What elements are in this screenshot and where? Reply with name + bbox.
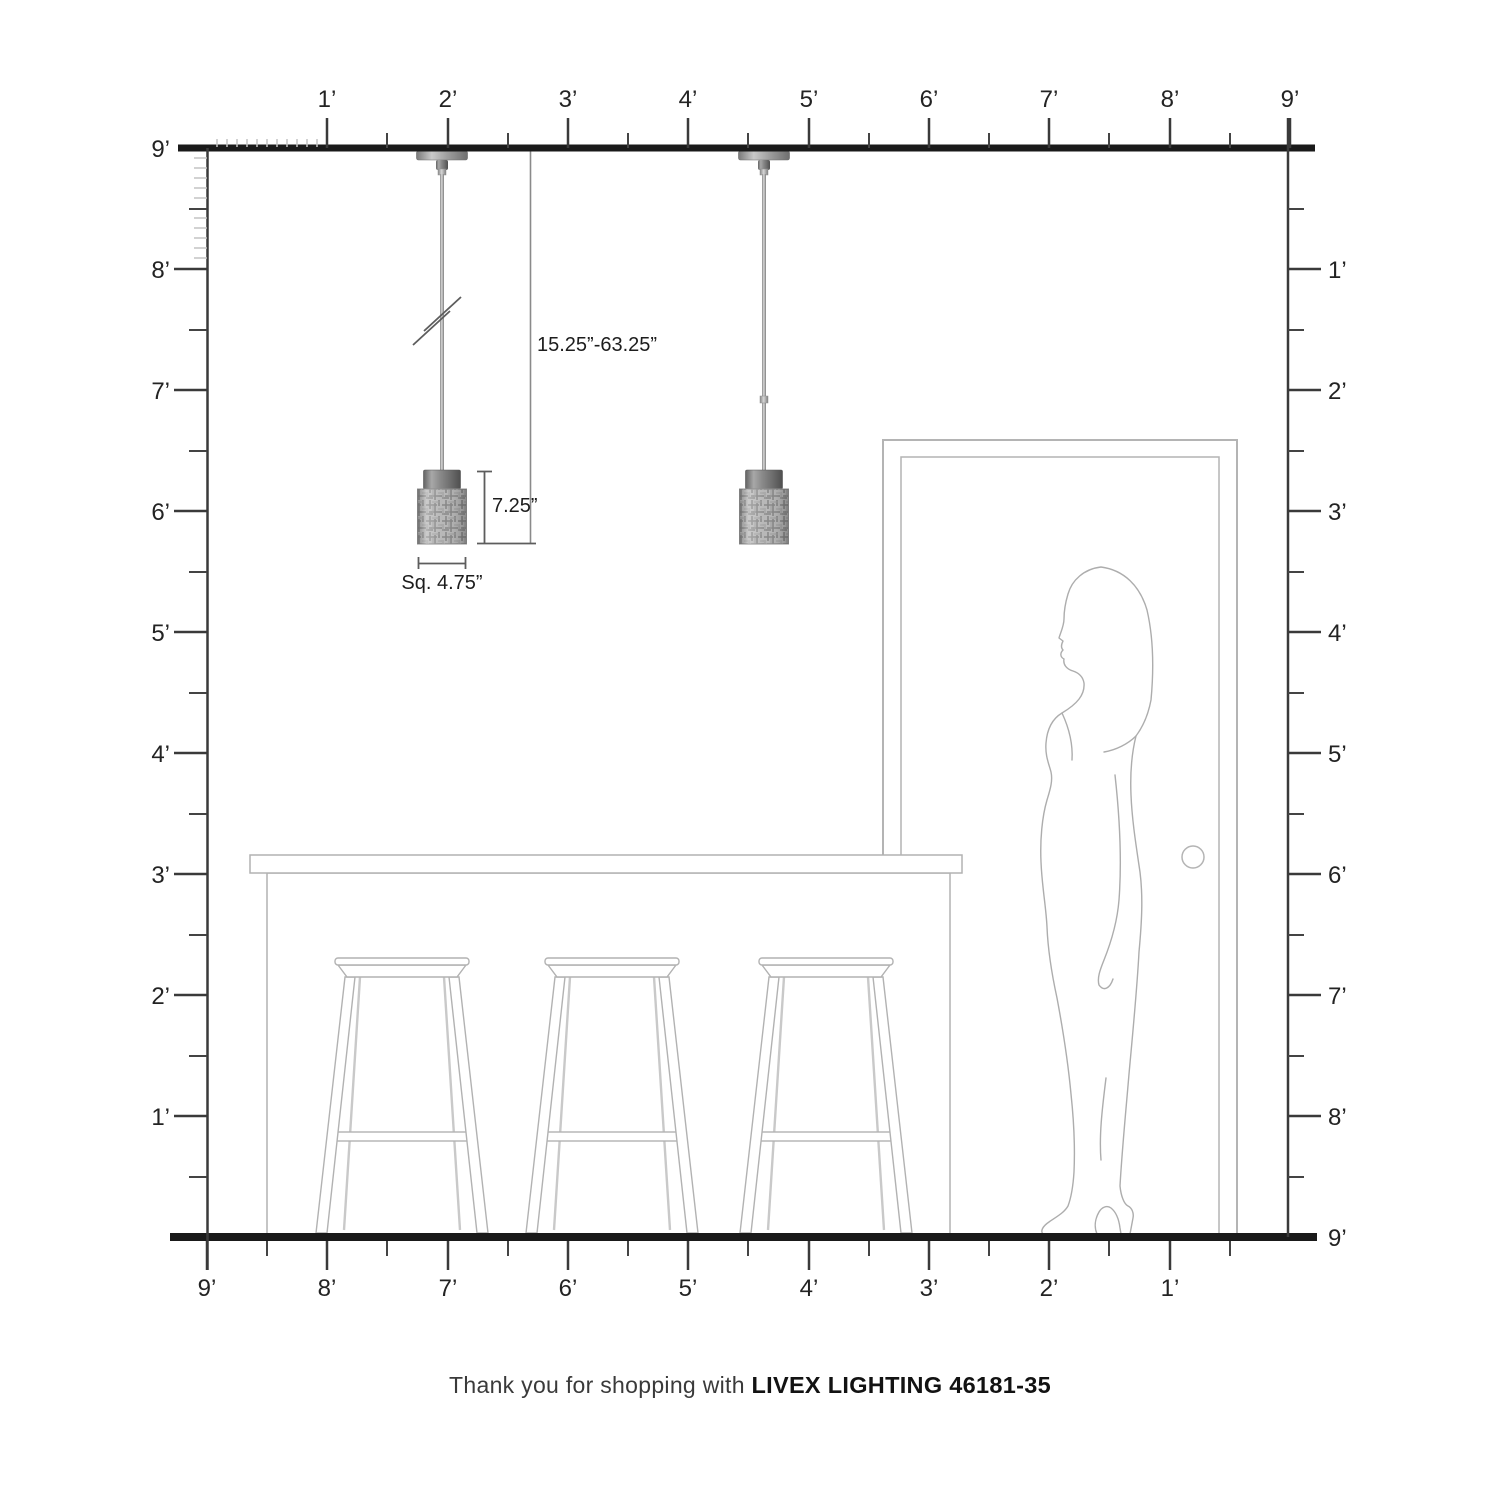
- dimension-diagram: 15.25”-63.25” 7.25” Sq. 4.75” 1’ 2’ 3’ 4…: [0, 0, 1500, 1500]
- ruler-label: 7’: [1040, 86, 1059, 113]
- ruler-label: 2’: [1328, 378, 1347, 405]
- rod-coupler: [760, 396, 768, 403]
- bottom-half-foot-ticks: [267, 1241, 1230, 1256]
- diagram-svg: 15.25”-63.25” 7.25” Sq. 4.75” 1’ 2’ 3’ 4…: [0, 0, 1500, 1500]
- ruler-label: 5’: [800, 86, 819, 113]
- ruler-label: 4’: [151, 741, 170, 768]
- island-base: [267, 873, 950, 1235]
- stool-stretcher: [333, 1132, 471, 1141]
- rod-length-break-marks: [413, 297, 461, 345]
- ruler-label: 1’: [1328, 257, 1347, 284]
- door-knob: [1182, 846, 1204, 868]
- ruler-label: 9’: [151, 136, 170, 163]
- shade-height-label: 7.25”: [492, 495, 538, 517]
- ruler-label: 2’: [1040, 1275, 1059, 1302]
- ruler-label: 8’: [151, 257, 170, 284]
- ruler-label: 9’: [198, 1275, 217, 1302]
- footer-brand-model: LIVEX LIGHTING 46181-35: [752, 1372, 1051, 1398]
- ruler-label: 9’: [1281, 86, 1300, 113]
- footer-thankyou-text: Thank you for shopping with: [449, 1372, 751, 1398]
- bottom-foot-ticks: [207, 1241, 1170, 1270]
- stool-stretcher: [543, 1132, 681, 1141]
- ruler-label: 3’: [920, 1275, 939, 1302]
- hang-range-label: 15.25”-63.25”: [537, 334, 657, 356]
- ruler-label: 4’: [1328, 620, 1347, 647]
- ruler-label: 5’: [679, 1275, 698, 1302]
- ruler-label: 8’: [1161, 86, 1180, 113]
- ruler-label: 3’: [151, 862, 170, 889]
- ruler-label: 2’: [151, 983, 170, 1010]
- shade-width-dimension-line: [418, 557, 466, 569]
- ruler-label: 6’: [920, 86, 939, 113]
- pendant-light-1: [413, 151, 468, 544]
- stool-apron: [338, 965, 466, 977]
- ruler-label: 6’: [559, 1275, 578, 1302]
- ruler-label: 6’: [151, 499, 170, 526]
- ruler-label: 1’: [1161, 1275, 1180, 1302]
- stool-apron: [762, 965, 890, 977]
- ruler-label: 6’: [1328, 862, 1347, 889]
- stool-seat: [335, 958, 469, 965]
- island-countertop: [250, 855, 962, 873]
- ruler-label: 3’: [559, 86, 578, 113]
- ruler-label: 5’: [1328, 741, 1347, 768]
- stool-seat: [545, 958, 679, 965]
- ruler-label: 4’: [679, 86, 698, 113]
- footer-text: Thank you for shopping with LIVEX LIGHTI…: [0, 1372, 1500, 1399]
- pendant-light-2: [739, 151, 790, 544]
- ruler-label: 7’: [1328, 983, 1347, 1010]
- right-ruler: 1’ 2’ 3’ 4’ 5’ 6’ 7’ 8’ 9’: [1288, 209, 1347, 1252]
- stool-stretcher: [757, 1132, 895, 1141]
- stool-apron: [548, 965, 676, 977]
- shade-width-label: Sq. 4.75”: [401, 572, 482, 594]
- ruler-label: 8’: [318, 1275, 337, 1302]
- stool-seat: [759, 958, 893, 965]
- left-half-foot-ticks: [189, 209, 207, 1177]
- ruler-label: 7’: [151, 378, 170, 405]
- ruler-label: 3’: [1328, 499, 1347, 526]
- ruler-label: 5’: [151, 620, 170, 647]
- ruler-label: 1’: [318, 86, 337, 113]
- ruler-label: 9’: [1328, 1225, 1347, 1252]
- ruler-label: 8’: [1328, 1104, 1347, 1131]
- ruler-label: 1’: [151, 1104, 170, 1131]
- top-ruler: 1’ 2’ 3’ 4’ 5’ 6’ 7’ 8’ 9’: [217, 86, 1299, 148]
- ruler-label: 4’: [800, 1275, 819, 1302]
- left-ruler: 9’ 8’ 7’ 6’ 5’ 4’ 3’ 2’ 1’: [151, 136, 207, 1177]
- top-foot-ticks: [327, 118, 1290, 148]
- ruler-label: 2’: [439, 86, 458, 113]
- ruler-label: 7’: [439, 1275, 458, 1302]
- right-half-foot-ticks: [1288, 209, 1304, 1177]
- bottom-ruler: 9’ 8’ 7’ 6’ 5’ 4’ 3’ 2’ 1’: [198, 1241, 1230, 1302]
